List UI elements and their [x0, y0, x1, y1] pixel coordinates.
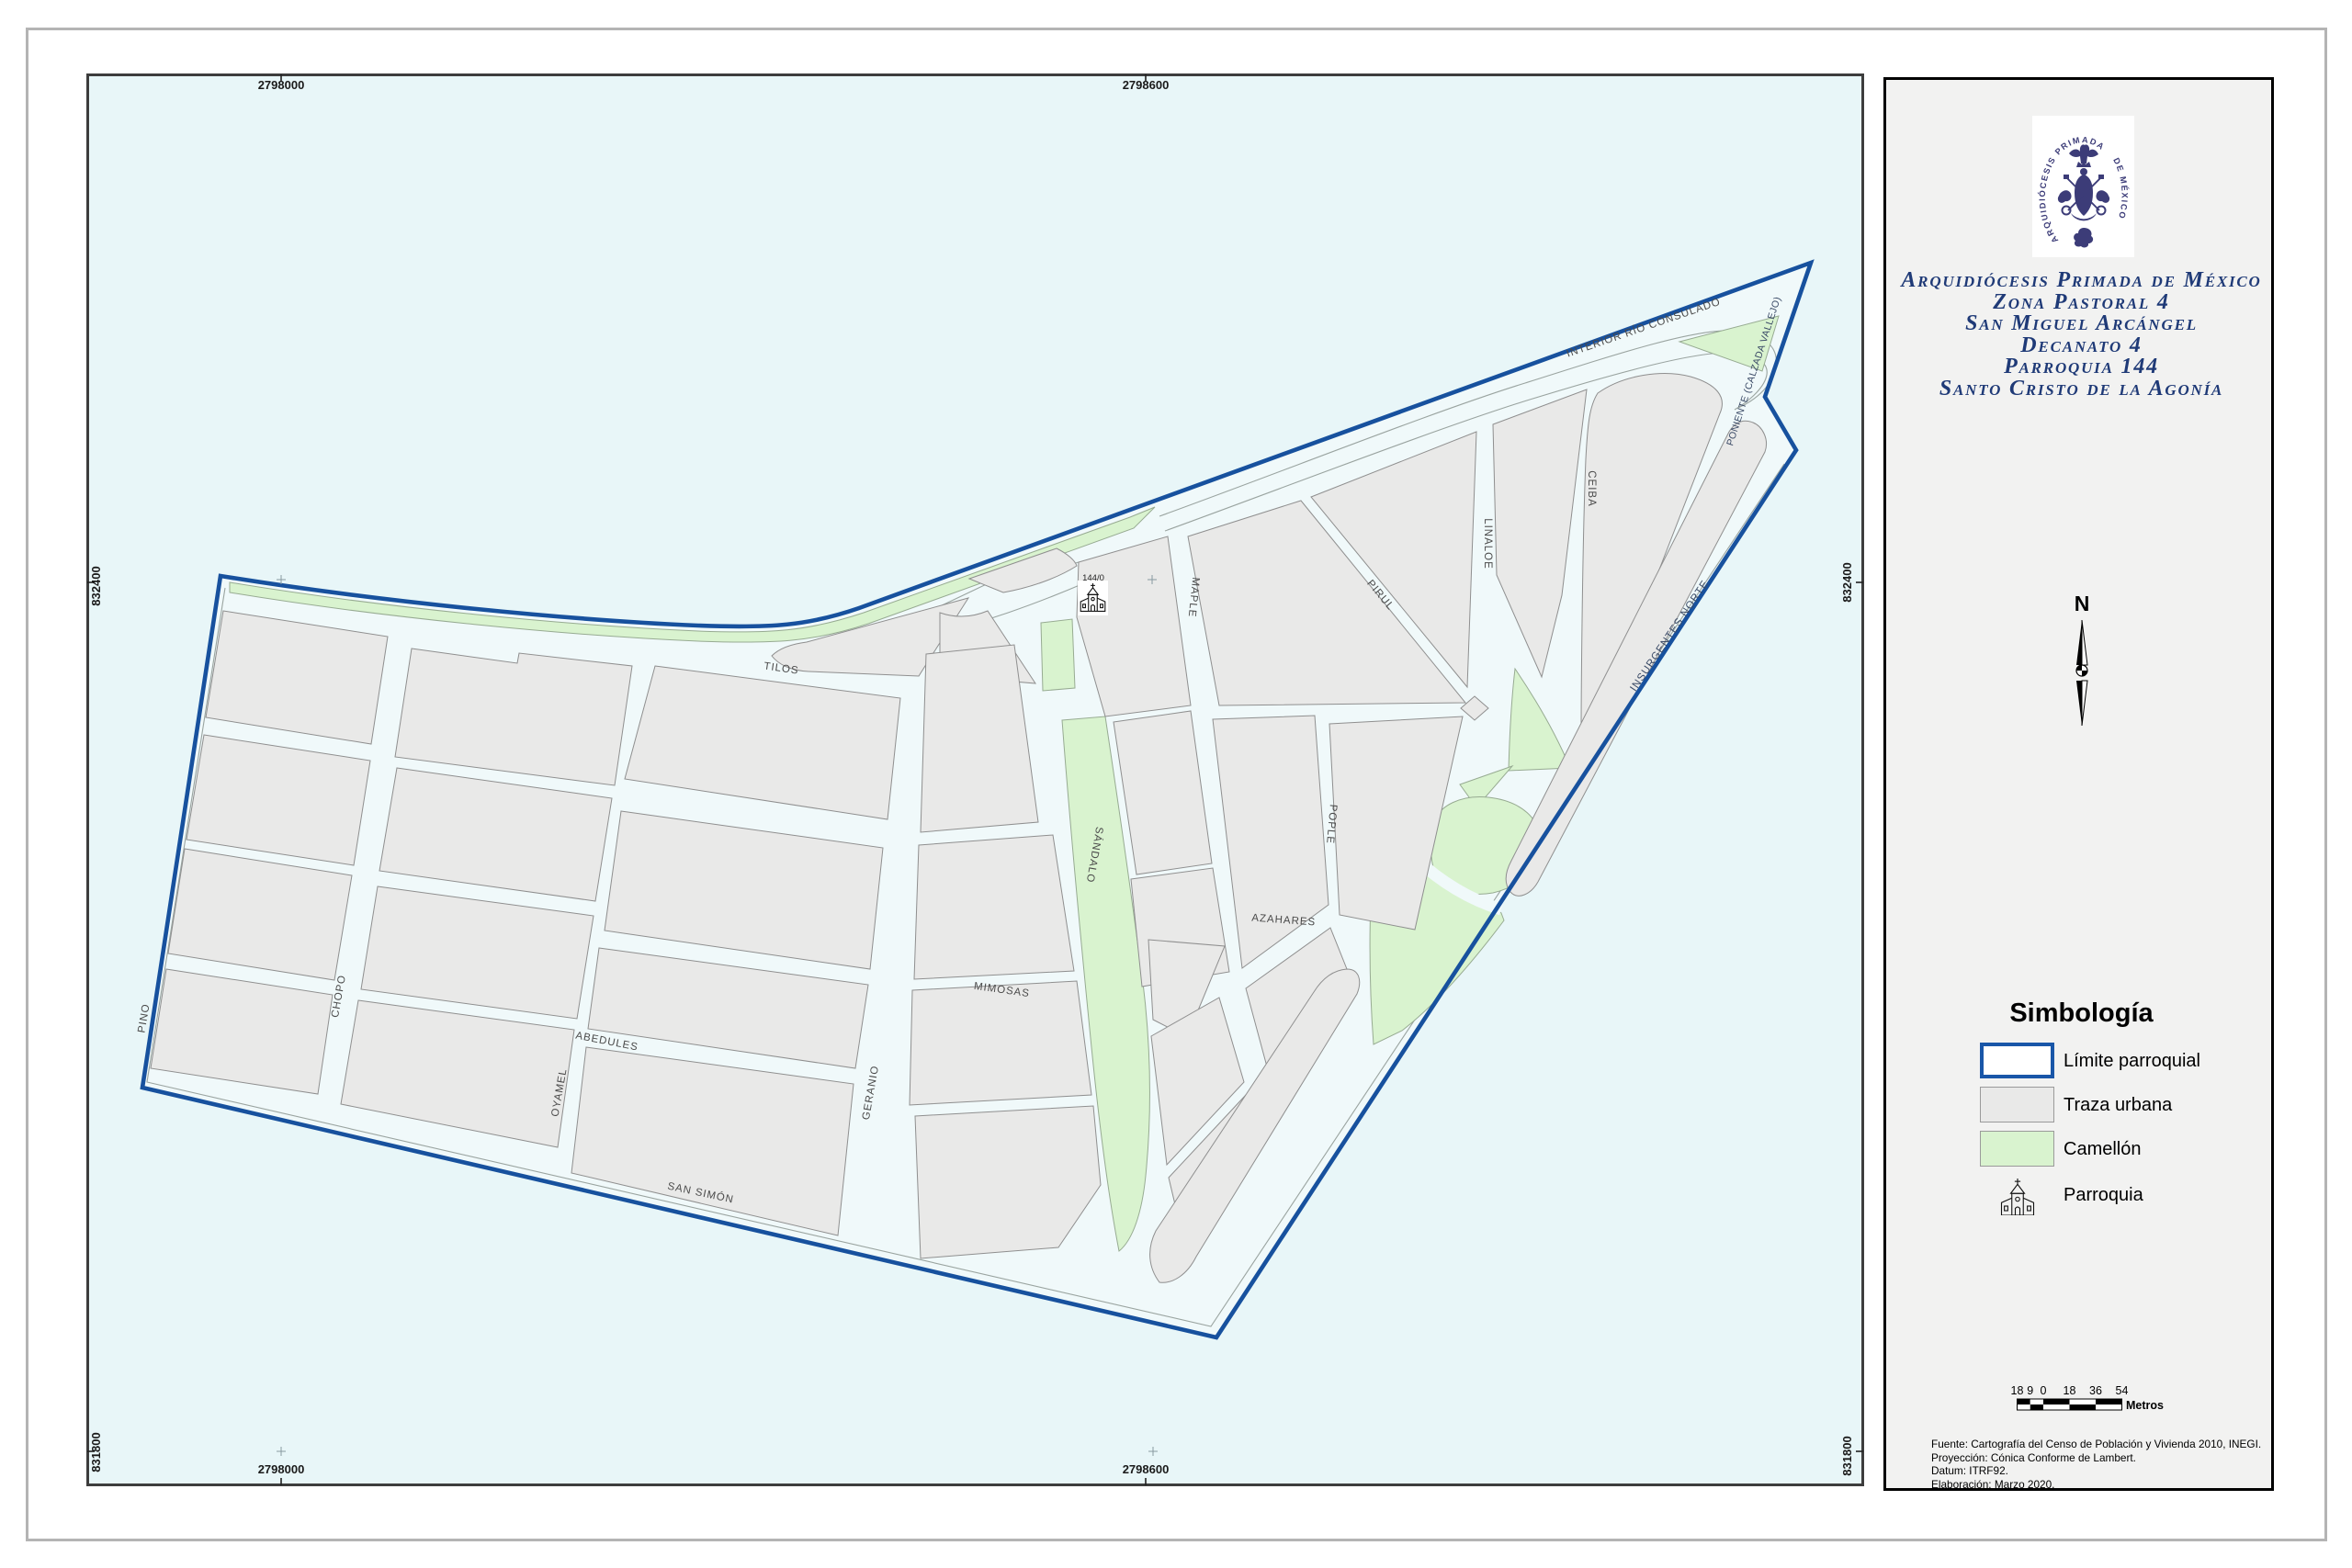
svg-text:2798600: 2798600	[1123, 1462, 1170, 1476]
svg-text:2798600: 2798600	[1123, 78, 1170, 92]
svg-text:0: 0	[2041, 1384, 2047, 1397]
svg-text:2798000: 2798000	[258, 78, 305, 92]
svg-text:832400: 832400	[89, 566, 103, 605]
svg-text:CEIBA: CEIBA	[1586, 470, 1597, 507]
svg-text:36: 36	[2089, 1384, 2102, 1397]
svg-text:18: 18	[2011, 1384, 2024, 1397]
svg-text:832400: 832400	[1840, 562, 1854, 602]
svg-text:Metros: Metros	[2126, 1399, 2164, 1412]
svg-text:18: 18	[2064, 1384, 2076, 1397]
svg-text:LINALOE: LINALOE	[1482, 518, 1493, 570]
svg-text:9: 9	[2027, 1384, 2033, 1397]
svg-text:144/0: 144/0	[1082, 573, 1104, 583]
svg-text:2798000: 2798000	[258, 1462, 305, 1476]
svg-text:N: N	[2075, 594, 2090, 615]
svg-text:54: 54	[2116, 1384, 2129, 1397]
svg-text:831800: 831800	[89, 1432, 103, 1472]
svg-text:831800: 831800	[1840, 1436, 1854, 1475]
